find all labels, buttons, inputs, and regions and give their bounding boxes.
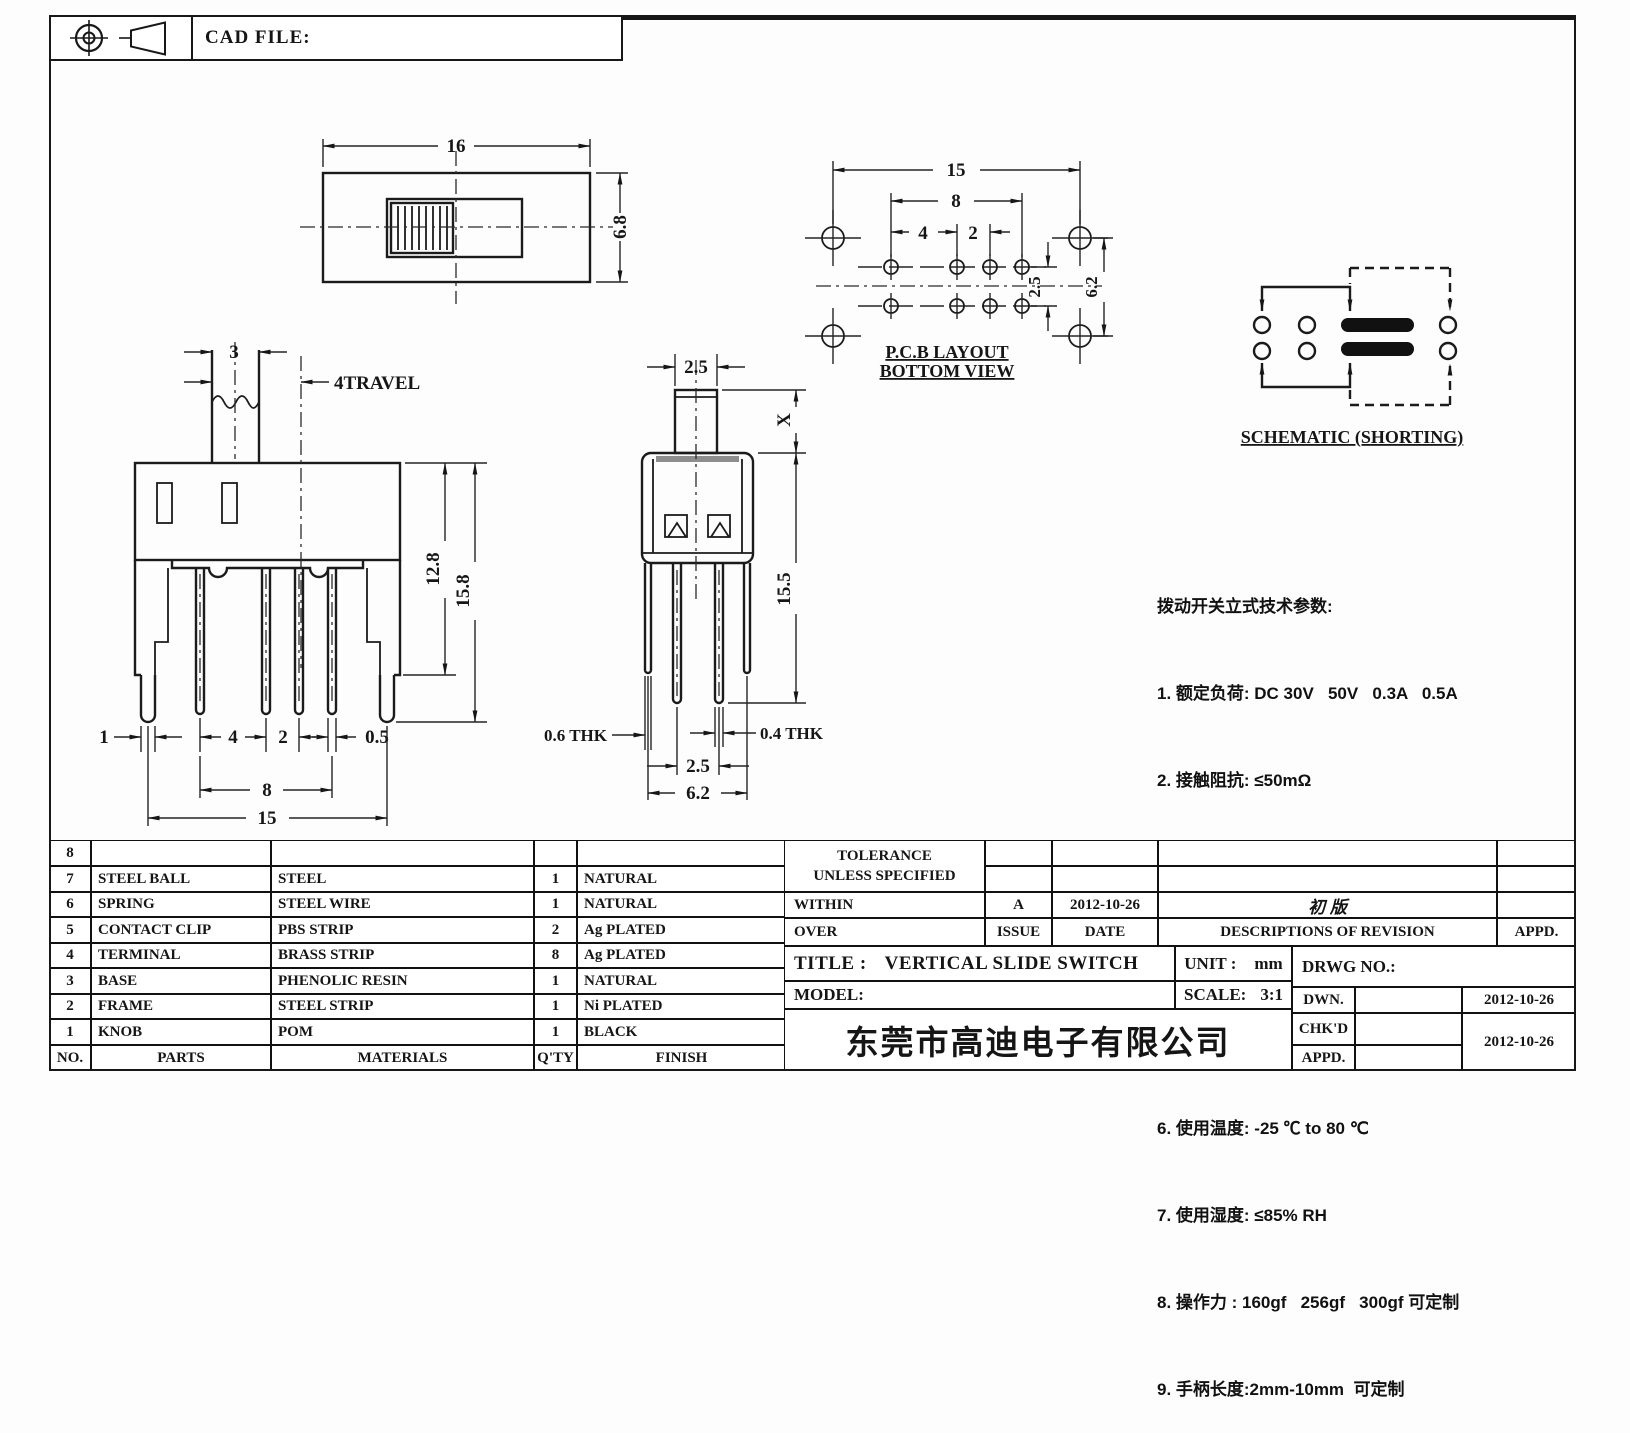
front-dim-1: 1 <box>99 727 109 748</box>
rev-date-cell: 2012-10-26 <box>1053 893 1157 917</box>
unit-label: UNIT : <box>1184 954 1236 974</box>
issue-header-cell: ISSUE <box>986 919 1051 945</box>
top-view: 16 6.8 <box>300 136 631 304</box>
dwn-label-cell: DWN. <box>1293 988 1354 1012</box>
title-label: TITLE : <box>794 953 867 975</box>
parts-cell-material <box>272 841 533 865</box>
parts-cell-material: BRASS STRIP <box>272 944 533 967</box>
tolerance-cell: TOLERANCE UNLESS SPECIFIED <box>785 841 984 891</box>
parts-header-no: NO. <box>50 1046 90 1070</box>
unit-value: mm <box>1254 954 1282 974</box>
over-cell: OVER <box>785 919 984 945</box>
rev-desc-cell: 初 版 <box>1159 893 1496 917</box>
rev-empty-cell <box>986 841 1051 865</box>
chkd-appd-date-cell: 2012-10-26 <box>1463 1014 1575 1070</box>
side-dim-15-5: 15.5 <box>774 572 795 605</box>
knob-slot-edge <box>656 456 739 462</box>
parts-cell-finish: Ni PLATED <box>578 995 785 1018</box>
parts-cell-qty: 1 <box>535 893 576 916</box>
rev-empty-cell <box>1159 841 1496 865</box>
parts-cell-material: POM <box>272 1020 533 1044</box>
rev-letter-cell: A <box>986 893 1051 917</box>
parts-header-qty: Q'TY <box>535 1046 576 1070</box>
parts-cell-no: 2 <box>50 995 90 1018</box>
parts-cell-no: 3 <box>50 969 90 993</box>
pcb-dim-4: 4 <box>918 223 928 244</box>
tech-param-item: 7. 使用湿度: ≤85% RH <box>1157 1201 1567 1230</box>
parts-cell-no: 7 <box>50 867 90 891</box>
projection-symbols <box>51 17 193 59</box>
rev-empty-cell <box>1498 867 1575 891</box>
parts-cell-material: PHENOLIC RESIN <box>272 969 533 993</box>
parts-cell-no: 4 <box>50 944 90 967</box>
within-cell: WITHIN <box>785 893 984 917</box>
rev-empty-cell <box>1053 841 1157 865</box>
pcb-layout-view: 15 8 4 2 2.5 6.2 P.C.B LAYOUT BOTTOM VIE… <box>805 160 1113 381</box>
parts-cell-qty: 1 <box>535 867 576 891</box>
front-dim-8: 8 <box>262 780 272 801</box>
pcb-dim-2-5: 2.5 <box>1025 276 1044 297</box>
tech-param-item: 1. 额定负荷: DC 30V 50V 0.3A 0.5A <box>1157 679 1567 708</box>
parts-cell-qty: 2 <box>535 918 576 942</box>
parts-cell-no: 5 <box>50 918 90 942</box>
side-dim-6-2: 6.2 <box>686 783 710 804</box>
cad-file-label: CAD FILE: <box>193 17 621 59</box>
appd-signature-cell <box>1356 1046 1461 1070</box>
cad-file-header: CAD FILE: <box>49 15 623 61</box>
rev-appd-empty-cell <box>1498 893 1575 917</box>
side-view: 2.5 X 15.5 0.6 THK 0.4 THK 2.5 6.2 <box>544 354 824 804</box>
tech-param-item: 8. 操作力 : 160gf 256gf 300gf 可定制 <box>1157 1288 1567 1317</box>
parts-header-materials: MATERIALS <box>272 1046 533 1070</box>
front-dim-3: 3 <box>229 342 239 363</box>
front-dim-12-8: 12.8 <box>423 552 444 585</box>
parts-cell-finish: NATURAL <box>578 867 785 891</box>
parts-cell-material: STEEL WIRE <box>272 893 533 916</box>
parts-cell-material: STEEL STRIP <box>272 995 533 1018</box>
side-thk-right: 0.4 THK <box>760 724 824 743</box>
pcb-caption-line1: P.C.B LAYOUT <box>885 342 1008 362</box>
rev-empty-cell <box>1053 867 1157 891</box>
front-dim-2: 2 <box>278 727 288 748</box>
appd-header-cell: APPD. <box>1498 919 1575 945</box>
parts-table: 8 7 STEEL BALL STEEL 1 NATURAL 6 SPRING … <box>49 840 786 1071</box>
parts-cell-qty: 1 <box>535 1020 576 1044</box>
front-travel-label: 4TRAVEL <box>334 373 420 394</box>
pcb-dim-8: 8 <box>951 191 961 212</box>
front-dim-4: 4 <box>228 727 238 748</box>
parts-cell-finish: BLACK <box>578 1020 785 1044</box>
front-dim-15-8: 15.8 <box>453 574 474 607</box>
parts-cell-qty: 1 <box>535 995 576 1018</box>
front-dim-0-5: 0.5 <box>365 727 389 748</box>
parts-cell-material: STEEL <box>272 867 533 891</box>
parts-cell-part: STEEL BALL <box>92 867 270 891</box>
parts-cell-qty: 1 <box>535 969 576 993</box>
parts-cell-finish: Ag PLATED <box>578 944 785 967</box>
parts-header-parts: PARTS <box>92 1046 270 1070</box>
top-width-dim: 16 <box>447 136 466 157</box>
company-name: 东莞市高迪电子有限公司 <box>785 1010 1291 1070</box>
parts-cell-qty <box>535 841 576 865</box>
parts-header-finish: FINISH <box>578 1046 785 1070</box>
rev-empty-cell <box>1498 841 1575 865</box>
parts-cell-qty: 8 <box>535 944 576 967</box>
front-view: 3 4TRAVEL 12.8 15.8 1 4 2 0.5 8 15 <box>99 342 487 829</box>
tech-param-item: 9. 手柄长度:2mm-10mm 可定制 <box>1157 1375 1567 1404</box>
front-dim-15: 15 <box>258 808 277 829</box>
scale-cell: SCALE: 3:1 <box>1176 982 1291 1008</box>
scale-value: 3:1 <box>1260 985 1283 1005</box>
parts-cell-part: TERMINAL <box>92 944 270 967</box>
parts-cell-no: 8 <box>50 841 90 865</box>
title-value: VERTICAL SLIDE SWITCH <box>885 953 1139 975</box>
pcb-caption-line2: BOTTOM VIEW <box>880 361 1015 381</box>
appd-label-cell: APPD. <box>1293 1046 1354 1070</box>
tolerance-line2: UNLESS SPECIFIED <box>813 866 955 886</box>
parts-cell-finish: NATURAL <box>578 969 785 993</box>
title-block: TOLERANCE UNLESS SPECIFIED WITHIN A 2012… <box>784 840 1576 1071</box>
parts-cell-finish <box>578 841 785 865</box>
shorting-bar-top <box>1341 318 1414 332</box>
pcb-dim-2: 2 <box>968 223 978 244</box>
parts-cell-part: FRAME <box>92 995 270 1018</box>
parts-cell-part: KNOB <box>92 1020 270 1044</box>
drwg-no-cell: DRWG NO.: <box>1293 947 1575 986</box>
tech-params-title: 拨动开关立式技术参数: <box>1157 592 1567 621</box>
tech-param-item: 6. 使用温度: -25 ℃ to 80 ℃ <box>1157 1114 1567 1143</box>
parts-cell-no: 6 <box>50 893 90 916</box>
parts-cell-part: BASE <box>92 969 270 993</box>
chkd-label-cell: CHK'D <box>1293 1014 1354 1044</box>
revision-desc-header-cell: DESCRIPTIONS OF REVISION <box>1159 919 1496 945</box>
dwn-signature-cell <box>1356 988 1461 1012</box>
schematic-view: SCHEMATIC (SHORTING) <box>1241 268 1464 448</box>
parts-cell-finish: NATURAL <box>578 893 785 916</box>
side-thk-left: 0.6 THK <box>544 726 608 745</box>
model-cell: MODEL: <box>785 982 1174 1008</box>
unit-cell: UNIT : mm <box>1176 947 1291 980</box>
dwn-date-cell: 2012-10-26 <box>1463 988 1575 1012</box>
parts-cell-material: PBS STRIP <box>272 918 533 942</box>
rev-empty-cell <box>1159 867 1496 891</box>
chkd-signature-cell <box>1356 1014 1461 1044</box>
title-cell: TITLE : VERTICAL SLIDE SWITCH <box>785 947 1174 980</box>
side-dim-x: X <box>774 413 795 427</box>
parts-cell-finish: Ag PLATED <box>578 918 785 942</box>
third-angle-projection-icon <box>51 18 191 59</box>
parts-cell-part <box>92 841 270 865</box>
scale-label: SCALE: <box>1184 985 1246 1005</box>
parts-cell-no: 1 <box>50 1020 90 1044</box>
parts-cell-part: SPRING <box>92 893 270 916</box>
side-dim-2-5-top: 2.5 <box>684 357 708 378</box>
schematic-caption: SCHEMATIC (SHORTING) <box>1241 427 1464 448</box>
rev-empty-cell <box>986 867 1051 891</box>
shorting-bar-bottom <box>1341 342 1414 356</box>
top-height-dim: 6.8 <box>610 215 631 239</box>
side-dim-2-5-bot: 2.5 <box>686 756 710 777</box>
date-header-cell: DATE <box>1053 919 1157 945</box>
pcb-dim-15: 15 <box>947 160 966 181</box>
parts-cell-part: CONTACT CLIP <box>92 918 270 942</box>
tech-param-item: 2. 接触阻抗: ≤50mΩ <box>1157 766 1567 795</box>
pcb-dim-6-2: 6.2 <box>1082 276 1101 297</box>
tolerance-line1: TOLERANCE <box>837 846 932 866</box>
